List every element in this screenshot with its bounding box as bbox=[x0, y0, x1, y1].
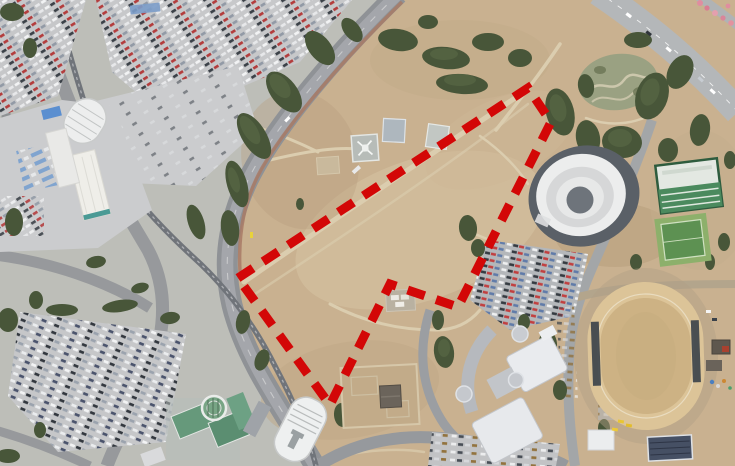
helipad-2 bbox=[382, 118, 405, 142]
red-roof bbox=[722, 346, 729, 352]
aerial-photo-canvas bbox=[0, 0, 735, 466]
hotel-round-pad bbox=[202, 396, 226, 420]
south-complex bbox=[140, 388, 332, 466]
helipad-with-helicopter bbox=[351, 134, 379, 162]
aerial-photo bbox=[0, 0, 735, 466]
dome-oculus bbox=[567, 187, 594, 214]
